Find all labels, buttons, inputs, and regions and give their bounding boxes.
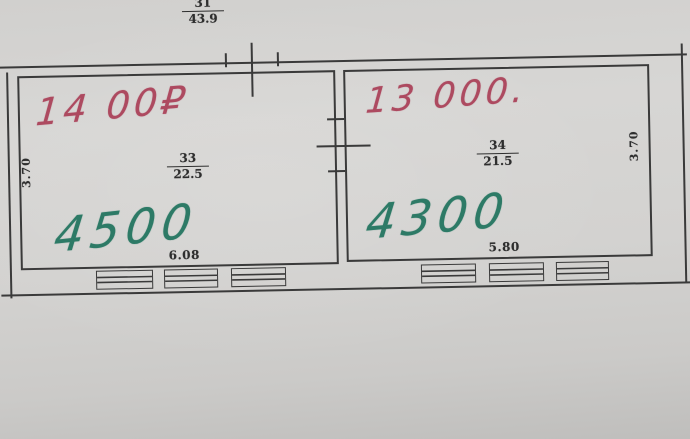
room-33-width-label: 6.08	[169, 248, 200, 263]
room-34-number-area-fraction: 34 21.5	[476, 139, 519, 168]
room-34-area: 21.5	[477, 153, 519, 167]
window-symbol	[96, 270, 153, 290]
room-34-number: 34	[476, 139, 518, 154]
building-dimension-numerator: 31	[182, 0, 224, 12]
partition-tick-upper	[327, 118, 344, 120]
room-34-width-label: 5.80	[488, 240, 519, 255]
partition-tick-lower	[328, 170, 345, 172]
room-33-number-area-fraction: 33 22.5	[167, 152, 210, 181]
top-dimension-tick-left	[225, 53, 227, 67]
window-symbol	[556, 261, 609, 281]
window-symbol	[489, 262, 544, 282]
room-34-depth-label: 3.70	[627, 130, 641, 161]
building-dimension-denominator: 43.9	[182, 11, 224, 25]
window-symbol	[164, 268, 218, 288]
floor-plan-photo: 31 43.9 14 00₽ 33 22.5 4500 6.08 3.70 13…	[0, 0, 690, 439]
building-dimension-fraction: 31 43.9	[182, 0, 225, 25]
room-33-depth-label: 3.70	[20, 157, 34, 188]
window-symbol	[231, 267, 286, 287]
room-33-number: 33	[167, 152, 209, 167]
top-dimension-tick-right	[277, 52, 279, 66]
outer-wall-right	[681, 43, 688, 281]
window-symbol	[421, 263, 476, 283]
floor-plan-drawing: 31 43.9 14 00₽ 33 22.5 4500 6.08 3.70 13…	[0, 0, 690, 439]
outer-wall-left	[6, 72, 12, 298]
room-33-area: 22.5	[167, 166, 209, 180]
